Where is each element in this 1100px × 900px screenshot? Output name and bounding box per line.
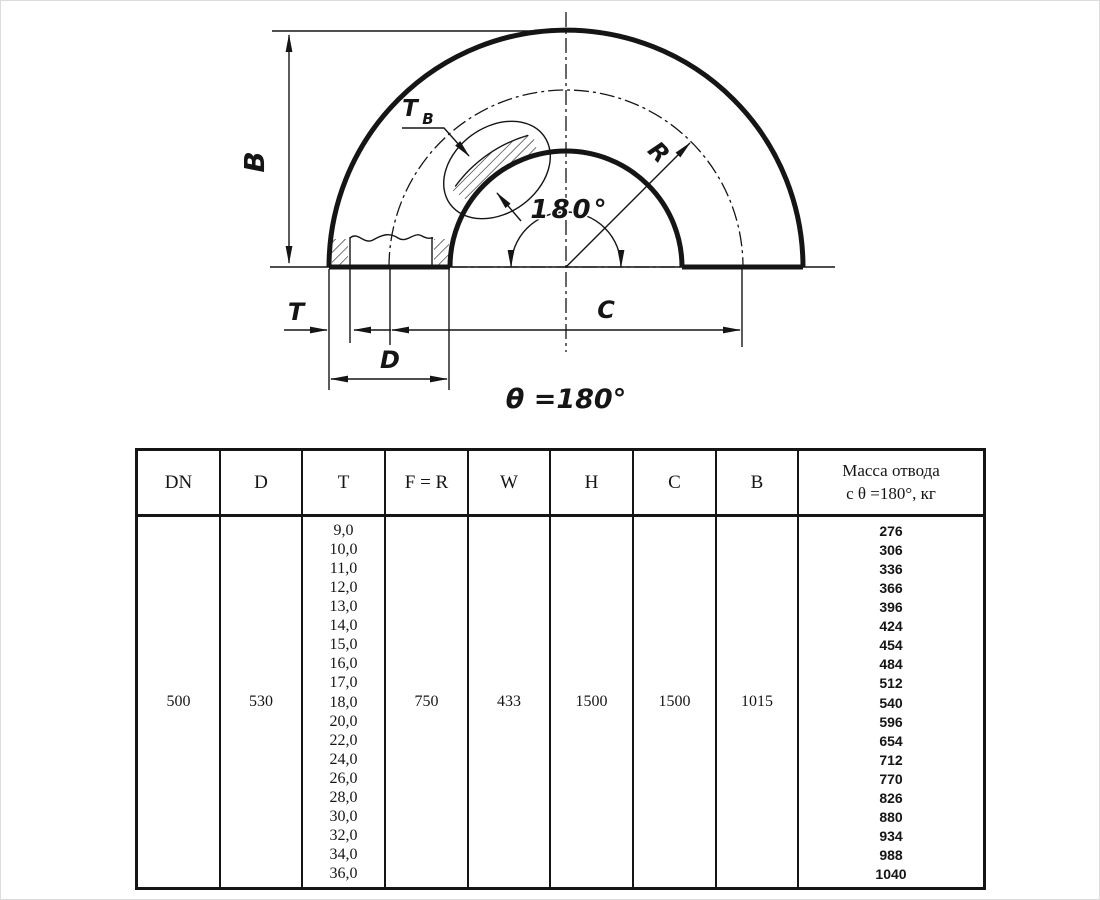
list-value: 424 bbox=[799, 617, 983, 636]
cell-t-values: 9,010,011,012,013,014,015,016,017,018,02… bbox=[303, 517, 386, 887]
cell-mass-values: 2763063363663964244544845125405966547127… bbox=[799, 517, 983, 887]
list-value: 880 bbox=[799, 808, 983, 827]
radius-label-R: R bbox=[642, 136, 675, 169]
list-value: 20,0 bbox=[303, 712, 384, 731]
figure-caption: θ =180° bbox=[506, 384, 626, 415]
page: B T C D 180° R T B θ =180° bbox=[0, 0, 1100, 900]
list-value: 988 bbox=[799, 846, 983, 865]
list-value: 826 bbox=[799, 789, 983, 808]
list-value: 34,0 bbox=[303, 846, 384, 865]
list-value: 14,0 bbox=[303, 617, 384, 636]
list-value: 712 bbox=[799, 750, 983, 769]
list-value: 9,0 bbox=[303, 521, 384, 540]
list-value: 15,0 bbox=[303, 636, 384, 655]
list-value: 306 bbox=[799, 540, 983, 559]
elbow-drawing: B T C D 180° R T B θ =180° bbox=[0, 0, 1100, 440]
list-value: 484 bbox=[799, 655, 983, 674]
wall-thickness-subscript: B bbox=[422, 110, 433, 128]
list-value: 336 bbox=[799, 559, 983, 578]
list-value: 17,0 bbox=[303, 674, 384, 693]
dimension-label-B: B bbox=[238, 151, 271, 172]
wall-thickness-label: T bbox=[402, 96, 420, 122]
col-header-c: C bbox=[634, 451, 717, 517]
col-header-h: H bbox=[551, 451, 634, 517]
col-header-d: D bbox=[221, 451, 303, 517]
list-value: 934 bbox=[799, 827, 983, 846]
list-value: 36,0 bbox=[303, 865, 384, 884]
col-header-mass: Масса отвода с θ =180°, кг bbox=[799, 451, 983, 517]
dimensions-table: DN D T F = R W H C B Масса отвода с θ =1… bbox=[135, 448, 986, 890]
list-value: 12,0 bbox=[303, 578, 384, 597]
list-value: 24,0 bbox=[303, 750, 384, 769]
pipe-elbow-figure: B T C D 180° R T B θ =180° bbox=[0, 0, 1100, 440]
list-value: 13,0 bbox=[303, 597, 384, 616]
col-header-fr: F = R bbox=[386, 451, 469, 517]
col-header-t: T bbox=[303, 451, 386, 517]
col-header-b: B bbox=[717, 451, 799, 517]
list-value: 654 bbox=[799, 731, 983, 750]
list-value: 366 bbox=[799, 578, 983, 597]
left-wall-hatch bbox=[332, 239, 348, 265]
list-value: 10,0 bbox=[303, 540, 384, 559]
col-header-dn: DN bbox=[138, 451, 221, 517]
list-value: 28,0 bbox=[303, 789, 384, 808]
dimension-label-D: D bbox=[380, 346, 400, 374]
cell-w: 433 bbox=[469, 517, 551, 887]
list-value: 1040 bbox=[799, 865, 983, 884]
dimension-label-T: T bbox=[288, 298, 306, 326]
list-value: 540 bbox=[799, 693, 983, 712]
list-value: 22,0 bbox=[303, 731, 384, 750]
cell-h: 1500 bbox=[551, 517, 634, 887]
right-wall-hatch bbox=[434, 239, 449, 265]
list-value: 596 bbox=[799, 712, 983, 731]
list-value: 770 bbox=[799, 769, 983, 788]
list-value: 512 bbox=[799, 674, 983, 693]
list-value: 11,0 bbox=[303, 559, 384, 578]
angle-label: 180° bbox=[530, 195, 609, 225]
list-value: 396 bbox=[799, 597, 983, 616]
dimension-label-C: C bbox=[597, 296, 615, 324]
cell-b: 1015 bbox=[717, 517, 799, 887]
list-value: 26,0 bbox=[303, 769, 384, 788]
cell-dn: 500 bbox=[138, 517, 221, 887]
col-header-w: W bbox=[469, 451, 551, 517]
list-value: 18,0 bbox=[303, 693, 384, 712]
cell-d: 530 bbox=[221, 517, 303, 887]
list-value: 276 bbox=[799, 521, 983, 540]
list-value: 30,0 bbox=[303, 808, 384, 827]
cell-fr: 750 bbox=[386, 517, 469, 887]
list-value: 32,0 bbox=[303, 827, 384, 846]
list-value: 16,0 bbox=[303, 655, 384, 674]
cell-c: 1500 bbox=[634, 517, 717, 887]
list-value: 454 bbox=[799, 636, 983, 655]
